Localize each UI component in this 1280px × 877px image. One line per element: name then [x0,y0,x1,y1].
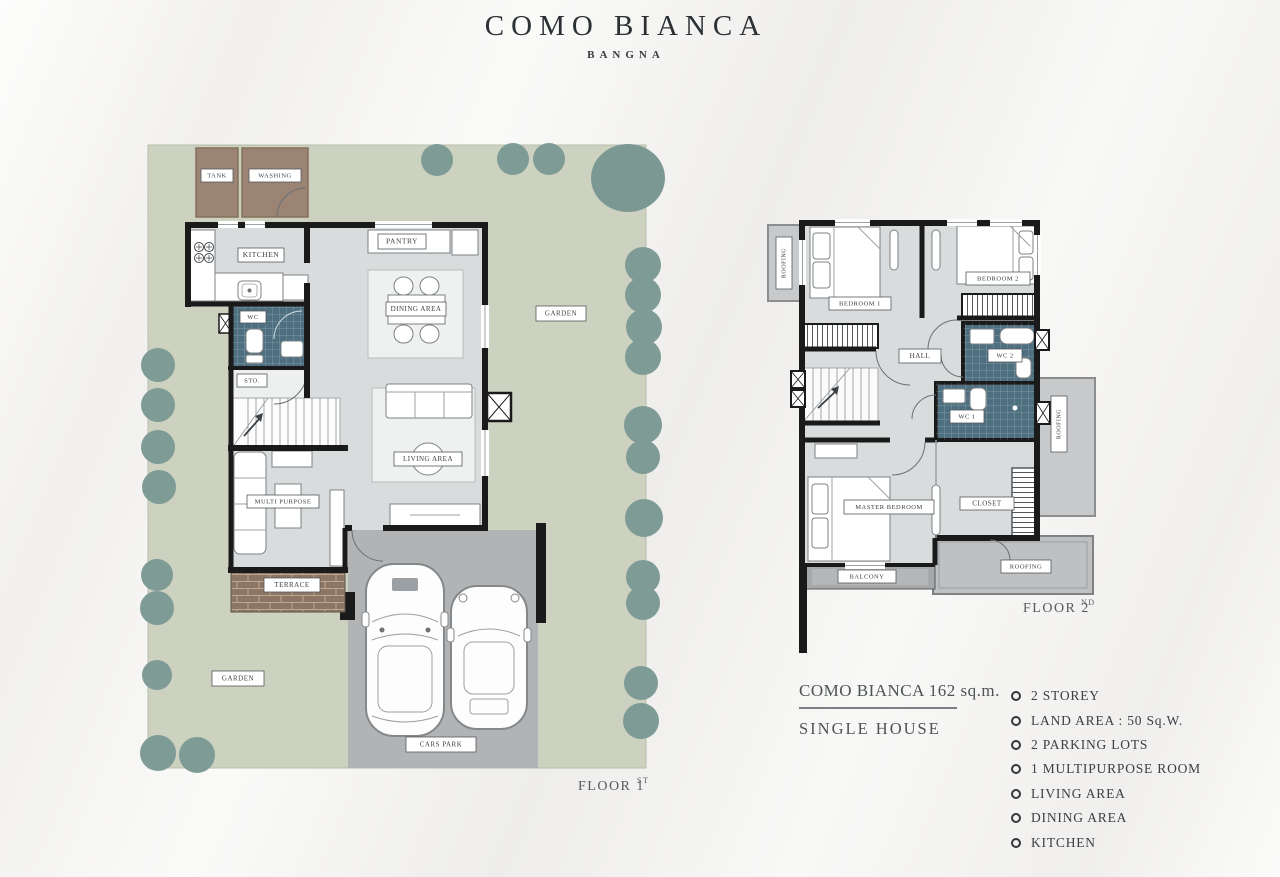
tree-icon [179,737,215,773]
pantry-label: PANTRY [386,237,418,246]
info-subheading: SINGLE HOUSE [799,719,1019,739]
roofing-label: ROOFING [1056,409,1062,439]
terrace-label: TERRACE [274,581,309,589]
wc1-label: WC 1 [958,413,975,420]
wardrobe [962,294,1036,318]
bullet-icon [1011,716,1021,726]
tree-icon [142,470,176,504]
cars-park-label: CARS PARK [420,741,463,749]
bed-icon [810,227,880,298]
brochure-page: COMO BIANCA BANGNA [0,0,1280,877]
feature-item: KITCHEN [1011,830,1201,854]
service-yard: TANK WASHING [196,148,308,217]
tree-icon [141,348,175,382]
feature-item: 2 STOREY [1011,684,1201,708]
tree-icon [626,440,660,474]
tree-icon [625,339,661,375]
car-park-wall [536,523,546,623]
tree-icon [141,559,173,591]
living-label: LIVING AREA [403,455,453,463]
wardrobe [804,324,878,348]
sofa-icon [386,384,472,418]
feature-text: KITCHEN [1031,835,1096,851]
bullet-icon [1011,764,1021,774]
feature-item: DINING AREA [1011,806,1201,830]
floor2-caption: FLOOR 2 ND [1023,598,1096,616]
washing-room [242,148,308,217]
feature-item: 1 MULTIPURPOSE ROOM [1011,757,1201,781]
tree-icon [533,143,565,175]
feature-text: 2 STOREY [1031,688,1100,704]
bullet-icon [1011,740,1021,750]
bullet-icon [1011,789,1021,799]
feature-text: 1 MULTIPURPOSE ROOM [1031,761,1201,777]
tree-icon [625,277,661,313]
stairs [803,368,878,422]
tree-icon [141,388,175,422]
car-park-area [340,523,546,768]
tree-icon [624,666,658,700]
car-icon [447,586,531,729]
kitchen-label: KITCHEN [243,250,279,259]
corner-cabinet [452,230,478,255]
chair-icon [394,325,413,343]
tank-room [196,148,238,217]
floor2-caption-text: FLOOR 2 [1023,601,1090,616]
hall-label: HALL [910,352,931,360]
feature-item: 2 PARKING LOTS [1011,733,1201,757]
storage-label: STO. [244,377,260,384]
cabinet [330,490,344,566]
tree-icon [140,591,174,625]
car-icon [362,564,448,736]
floor1-caption: FLOOR 1 ST [578,776,649,794]
feature-text: DINING AREA [1031,810,1127,826]
living-set [372,384,475,482]
tree-icon [624,406,662,444]
wc-label: WC [247,314,258,321]
wardrobe [1012,468,1035,536]
floor2-caption-sup: ND [1081,598,1096,607]
washing-label: WASHING [258,172,291,179]
chair-icon [420,325,439,343]
tree-icon [625,499,663,537]
tree-icon [591,144,665,212]
toilet-icon [970,388,986,410]
floor1-caption-sup: ST [637,776,649,785]
tree-icon [142,660,172,690]
info-heading: COMO BIANCA 162 sq.m. [799,681,1019,701]
dining-label: DINING AREA [391,305,442,313]
basin-icon [943,389,965,403]
info-rule [799,707,957,709]
feature-item: LAND AREA : 50 Sq.W. [1011,708,1201,732]
info-block: COMO BIANCA 162 sq.m. SINGLE HOUSE [799,681,1019,739]
tree-icon [421,144,453,176]
basin-icon [281,341,303,357]
tank-label: TANK [207,172,227,179]
tree-icon [623,703,659,739]
master-bedroom-label: MASTER BEDROOM [855,504,923,511]
feature-text: LAND AREA : 50 Sq.W. [1031,713,1183,729]
toilet-icon [246,329,263,353]
balcony-wall [799,565,807,653]
basin-icon [970,329,994,344]
roofing-label: ROOFING [1010,563,1042,570]
shaft-box [487,393,511,421]
tree-icon [497,143,529,175]
balcony-label: BALCONY [850,573,885,580]
tree-icon [626,586,660,620]
roofing-label: ROOFING [781,248,787,278]
tree-icon [140,735,176,771]
feature-text: LIVING AREA [1031,786,1126,802]
bullet-icon [1011,838,1021,848]
closet-label: CLOSET [972,500,1002,508]
floor1-caption-text: FLOOR 1 [578,779,645,794]
multipurpose-label: MULTI PURPOSE [255,498,312,505]
garden-label: GARDEN [545,310,577,318]
feature-list: 2 STOREY LAND AREA : 50 Sq.W. 2 PARKING … [1011,684,1201,855]
bullet-icon [1011,691,1021,701]
chair-icon [394,277,413,295]
bullet-icon [1011,813,1021,823]
feature-text: 2 PARKING LOTS [1031,737,1148,753]
chair-icon [420,277,439,295]
bathtub-icon [1000,328,1034,344]
floor1-plan: TANK WASHING [140,143,665,794]
wc2-label: WC 2 [996,352,1013,359]
floor2-plan: ROOFING ROOFING ROOFING BEDROOM 1 BEDROO… [768,219,1096,653]
tree-icon [141,430,175,464]
bedroom2-label: BEDROOM 2 [977,275,1019,282]
garden-label: GARDEN [222,675,254,683]
feature-item: LIVING AREA [1011,782,1201,806]
bedroom1-label: BEDROOM 1 [839,300,881,307]
